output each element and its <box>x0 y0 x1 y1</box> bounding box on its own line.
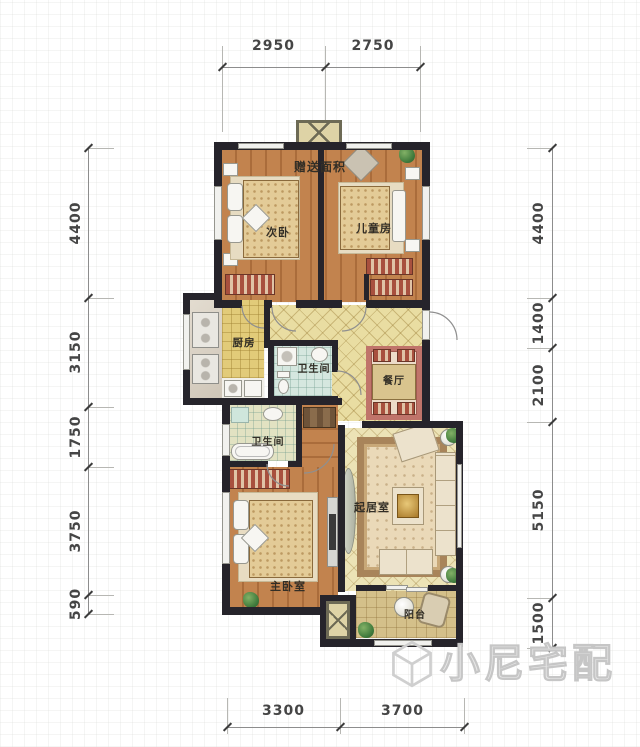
window <box>238 143 284 149</box>
dim-right-4: 5150 <box>531 480 547 540</box>
wall <box>296 300 342 308</box>
dining-chair <box>397 402 415 415</box>
dining-chair <box>373 349 391 362</box>
window <box>183 314 190 370</box>
hall-cabinet <box>303 407 336 428</box>
shower-corner <box>231 407 249 423</box>
tv <box>329 514 336 550</box>
bed-mattress <box>340 186 390 250</box>
secondary-bedroom-label: 次卧 <box>256 226 300 239</box>
dresser <box>366 258 413 275</box>
kitchen-stove <box>244 380 262 397</box>
wall <box>264 300 272 308</box>
dim-left-1: 4400 <box>68 193 84 253</box>
watermark: 小尼宅配 <box>390 640 616 688</box>
wall <box>214 300 242 308</box>
dining-chair <box>397 349 415 362</box>
dim-right-1: 4400 <box>531 193 547 253</box>
kitchen-sink <box>224 380 242 397</box>
dim-left-5: 590 <box>68 574 84 634</box>
window <box>346 143 392 149</box>
shaft-bottom <box>326 601 350 639</box>
master-bedroom-label: 主卧室 <box>261 580 315 593</box>
window <box>457 464 462 548</box>
window <box>222 492 230 564</box>
wall <box>222 607 324 615</box>
extension-line <box>222 46 223 132</box>
dim-right-3: 2100 <box>531 355 547 415</box>
wall <box>268 340 274 402</box>
dining-table: 餐厅 <box>372 364 416 400</box>
wall <box>356 585 386 591</box>
dining-chair <box>373 402 391 415</box>
window <box>214 186 222 240</box>
toilet-tank <box>277 371 290 378</box>
dim-bottom-1: 3300 <box>227 703 340 719</box>
dining-room-label: 餐厅 <box>383 376 405 388</box>
dim-left-4: 3750 <box>68 501 84 561</box>
wall <box>366 300 430 308</box>
wall <box>338 425 345 592</box>
extension-line <box>88 467 114 468</box>
wall <box>422 340 430 428</box>
dim-right-5: 1500 <box>531 593 547 653</box>
wall <box>296 405 302 467</box>
nightstand <box>223 163 238 176</box>
extension-line <box>88 148 114 149</box>
window <box>422 186 430 240</box>
loveseat <box>379 549 433 575</box>
wall <box>268 340 338 346</box>
wall <box>222 461 268 467</box>
dim-tick <box>548 643 557 652</box>
wall <box>288 461 302 467</box>
children-room-label: 儿童房 <box>350 222 398 235</box>
bonus-area-label: 赠送面积 <box>282 160 358 174</box>
entry-door-leaf <box>422 310 430 340</box>
wall <box>320 595 326 645</box>
watermark-text: 小尼宅配 <box>440 644 616 684</box>
cube-logo-icon <box>390 640 434 688</box>
dresser <box>225 274 275 295</box>
window <box>374 640 432 646</box>
bathroom-upper-label: 卫生间 <box>291 364 337 376</box>
dim-top-1: 2950 <box>222 38 325 54</box>
living-room-label: 起居室 <box>347 501 397 514</box>
dim-left-2: 3150 <box>68 322 84 382</box>
dresser <box>370 279 413 296</box>
dim-bottom-2: 3700 <box>340 703 465 719</box>
bathroom-lower-label: 卫生间 <box>245 437 291 449</box>
dim-top-2: 2750 <box>325 38 421 54</box>
wall <box>428 585 463 591</box>
balcony-slider <box>406 587 428 592</box>
dim-left-3: 1750 <box>68 407 84 467</box>
dimension-line-bottom <box>227 727 465 728</box>
sofa <box>435 452 456 556</box>
pillow <box>233 500 249 530</box>
plant <box>243 592 259 608</box>
wall <box>350 595 356 645</box>
bath-sink <box>263 407 283 421</box>
stove-counter <box>192 354 219 384</box>
plant <box>358 622 374 638</box>
extension-line <box>88 298 114 299</box>
dim-right-2: 1400 <box>531 293 547 353</box>
dimension-line-right <box>552 148 553 649</box>
window <box>222 424 230 456</box>
nightstand <box>405 167 420 180</box>
wardrobe <box>229 469 290 489</box>
floor-plan-canvas: 2950 2750 3300 3700 4400 3150 1750 3750 … <box>0 0 640 747</box>
extension-line <box>88 407 114 408</box>
wall <box>362 421 463 428</box>
balcony-slider <box>386 585 408 590</box>
sink-counter <box>192 312 219 348</box>
pillow <box>227 183 243 211</box>
extension-line <box>88 614 114 615</box>
kitchen-label: 厨房 <box>227 337 261 350</box>
balcony-label: 阳台 <box>401 610 429 622</box>
extension-line <box>420 46 421 132</box>
wall <box>222 398 342 405</box>
bath-sink <box>311 347 328 362</box>
toilet-bowl <box>278 379 289 394</box>
pillow <box>227 215 243 243</box>
wall <box>364 274 369 300</box>
wall <box>183 293 214 300</box>
coffee-table-top <box>397 494 419 518</box>
dimension-line-left <box>88 148 89 615</box>
extension-line <box>88 595 114 596</box>
nightstand <box>405 239 420 252</box>
